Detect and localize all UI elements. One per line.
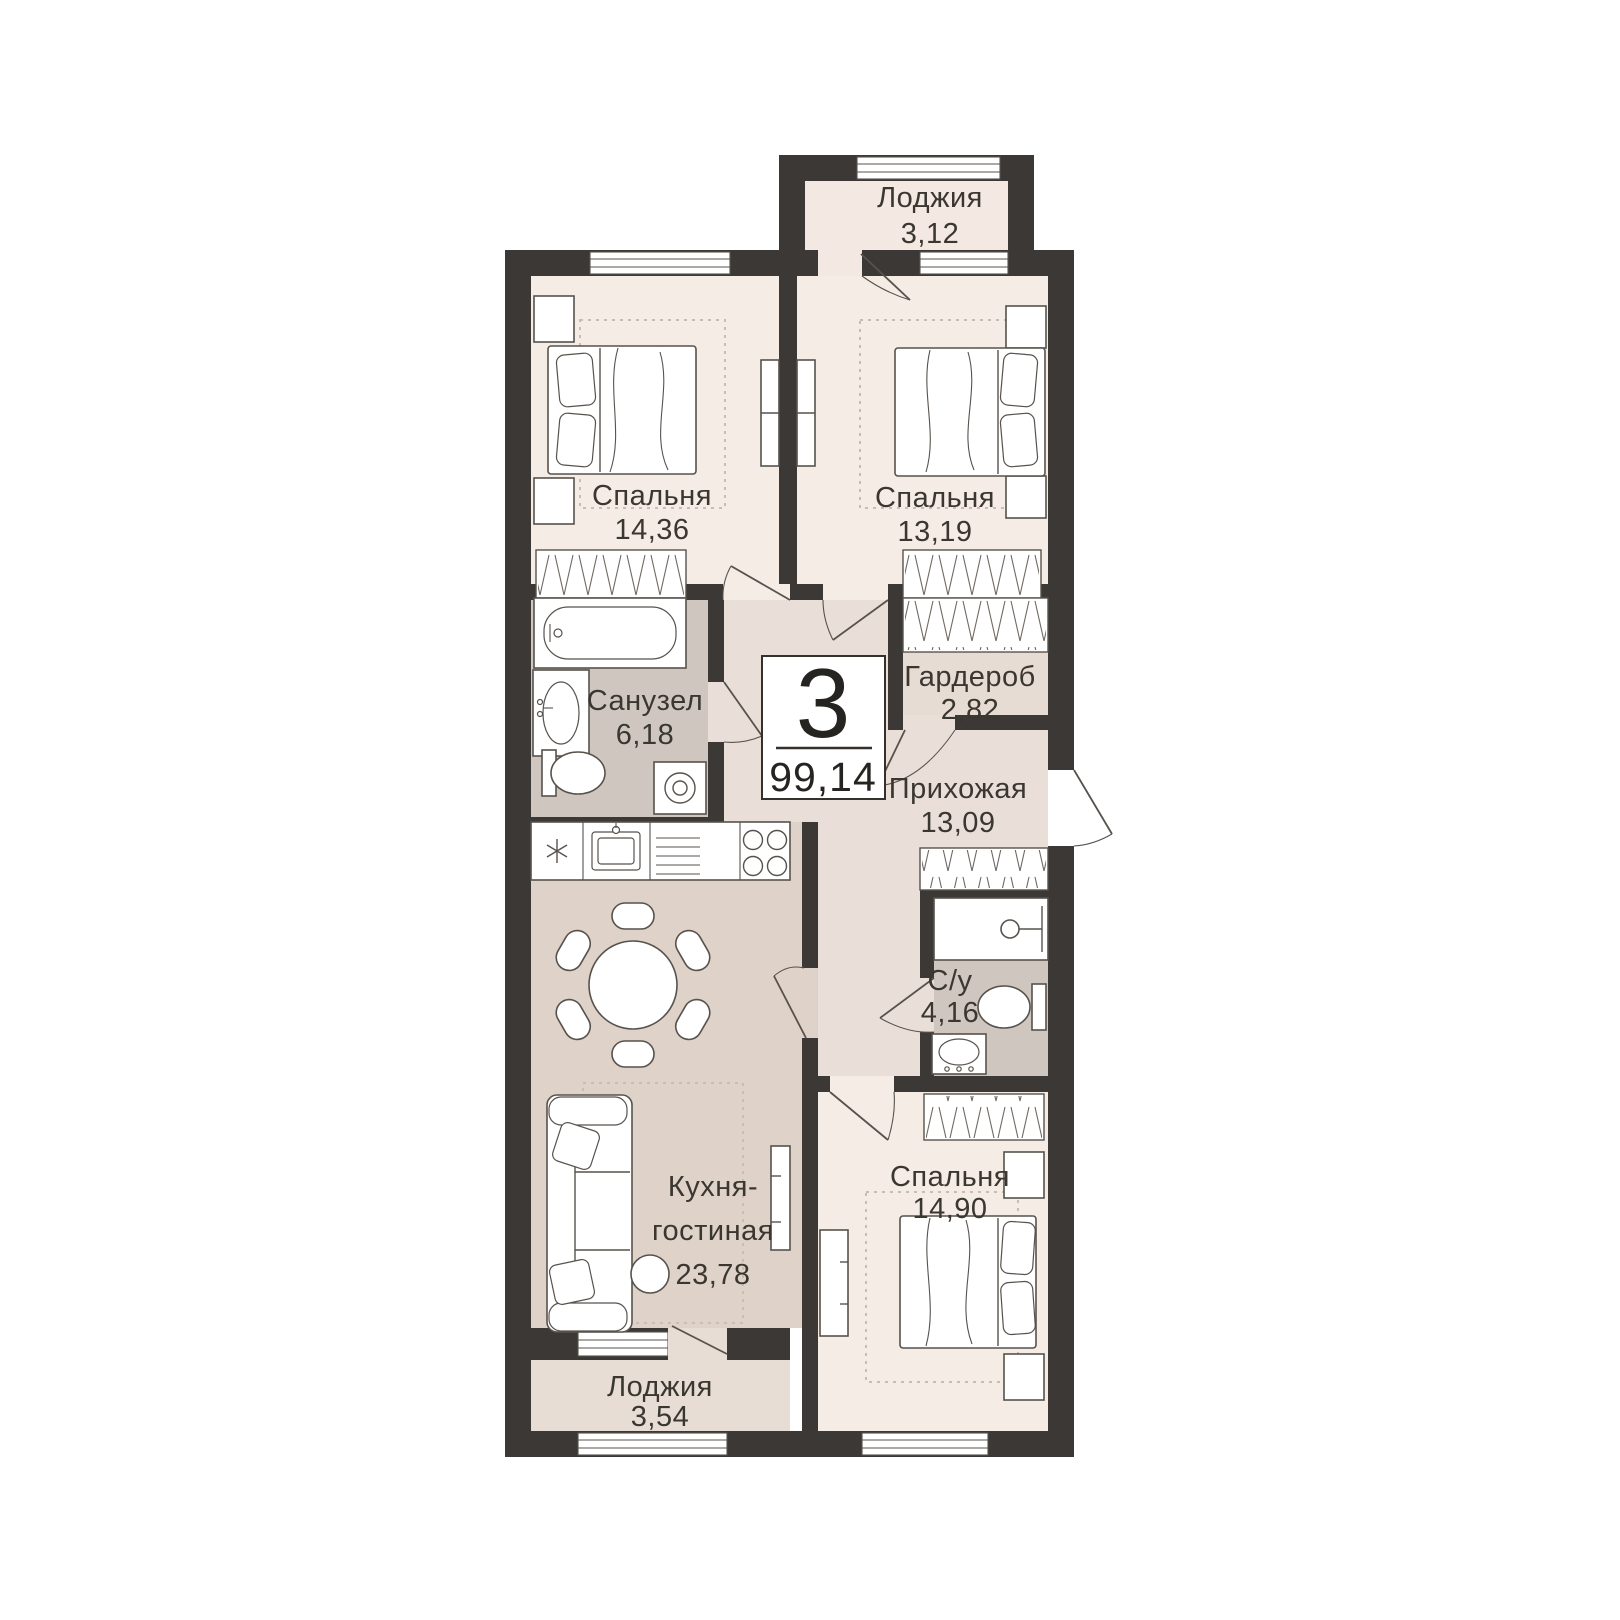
wardrobe-hatch [920, 848, 1048, 890]
cabinet [761, 360, 779, 466]
window-loggia-to-bedroom-2 [920, 252, 1008, 274]
double-bed [548, 346, 696, 474]
window-loggia-top [857, 157, 1000, 179]
label-loggia-bottom-name: Лоджия [607, 1371, 713, 1403]
label-bedroom-1-area: 14,36 [614, 514, 689, 546]
wall-left [505, 250, 531, 1457]
kitchen-counter [531, 822, 790, 880]
badge-rooms-count: 3 [796, 648, 851, 758]
bathtub [534, 598, 686, 668]
label-wc-name: С/у [928, 965, 973, 997]
double-bed [900, 1216, 1036, 1348]
label-bedroom-2-name: Спальня [875, 482, 995, 514]
label-loggia-bottom-area: 3,54 [631, 1401, 689, 1433]
sink [932, 1034, 986, 1074]
sink [533, 670, 589, 756]
label-kitchen-name-line2: гостиная [652, 1215, 774, 1247]
wardrobe-hatch [924, 1094, 1044, 1140]
wall-right [1048, 250, 1074, 1457]
cabinet [797, 360, 815, 466]
nightstand [534, 296, 574, 342]
double-bed [895, 348, 1045, 476]
window-bedroom-3 [862, 1433, 988, 1455]
label-bathroom-area: 6,18 [616, 719, 674, 751]
badge-total-area: 99,14 [769, 754, 877, 800]
label-wardrobe-name: Гардероб [904, 661, 1036, 693]
floor-plan: 3 99,14 Лоджия 3,12 Спальня 14,36 Спальн… [0, 0, 1620, 1620]
unit-badge: 3 99,14 [762, 648, 885, 800]
window-bedroom-1 [590, 252, 730, 274]
side-table [631, 1255, 669, 1293]
label-loggia-top-area: 3,12 [901, 218, 959, 250]
wardrobe-hatch [903, 550, 1041, 598]
label-bedroom-3-name: Спальня [890, 1161, 1010, 1193]
door-entrance [1048, 770, 1112, 846]
washing-machine [654, 762, 706, 814]
wall-kitchen-right [802, 822, 818, 1431]
door-loggia-bottom [668, 1326, 727, 1360]
label-kitchen-area: 23,78 [675, 1259, 750, 1291]
pillow [548, 1258, 595, 1305]
sofa [547, 1095, 632, 1332]
furniture-hallway [920, 848, 1048, 890]
dresser [820, 1230, 848, 1336]
wall-wardrobe-left [888, 592, 903, 715]
label-kitchen-name-line1: Кухня- [668, 1171, 758, 1203]
nightstand [1004, 1354, 1044, 1400]
corridor-floor [818, 848, 920, 1076]
nightstand [1006, 476, 1046, 518]
label-wc-area: 4,16 [921, 997, 979, 1029]
label-bedroom-2-area: 13,19 [897, 516, 972, 548]
label-bathroom-name: Санузел [587, 685, 703, 717]
toilet [542, 750, 605, 796]
nightstand [1006, 306, 1046, 348]
wardrobe-hatch [536, 550, 686, 598]
label-bedroom-1-name: Спальня [592, 480, 712, 512]
label-bedroom-3-area: 14,90 [912, 1193, 987, 1225]
nightstand [534, 478, 574, 524]
label-loggia-top-name: Лоджия [877, 182, 983, 214]
label-wardrobe-area: 2,82 [941, 694, 999, 726]
furniture-wardrobe-room [903, 598, 1048, 652]
wardrobe-hatch [903, 598, 1048, 652]
shower [934, 898, 1048, 960]
wall-between-bedrooms [779, 276, 797, 584]
window-kitchen-to-loggia [578, 1332, 668, 1356]
window-loggia-bottom [578, 1433, 727, 1455]
label-hallway-area: 13,09 [920, 807, 995, 839]
floor-plan-page: 3 99,14 Лоджия 3,12 Спальня 14,36 Спальн… [0, 0, 1620, 1620]
label-hallway-name: Прихожая [889, 773, 1027, 805]
toilet [978, 984, 1046, 1030]
